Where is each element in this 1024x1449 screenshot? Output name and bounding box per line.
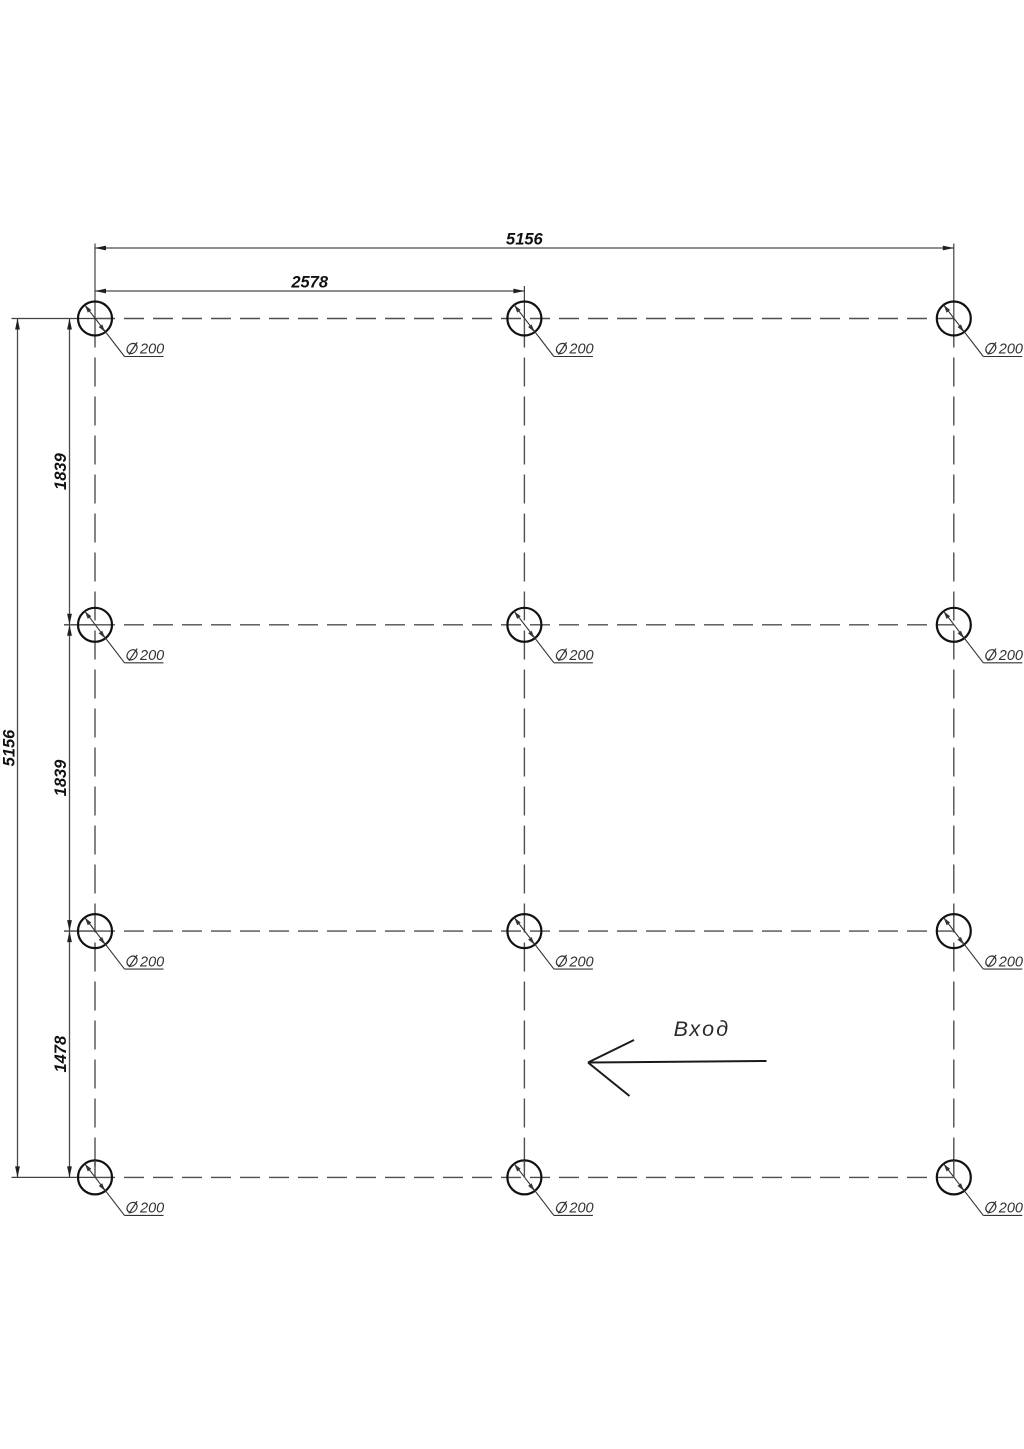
svg-text:200: 200 [139,954,164,970]
svg-text:200: 200 [139,648,164,664]
svg-text:1478: 1478 [52,1035,70,1073]
svg-text:200: 200 [139,342,164,358]
svg-text:Вход: Вход [674,1017,731,1041]
svg-text:200: 200 [568,954,593,970]
svg-text:200: 200 [139,1201,164,1217]
svg-text:200: 200 [568,1201,593,1217]
svg-text:200: 200 [998,342,1023,358]
svg-text:200: 200 [998,648,1023,664]
svg-text:200: 200 [998,1201,1023,1217]
svg-text:1839: 1839 [52,452,70,490]
svg-text:1839: 1839 [52,759,70,797]
svg-text:200: 200 [568,648,593,664]
svg-text:2578: 2578 [290,274,329,292]
svg-text:200: 200 [998,954,1023,970]
svg-text:200: 200 [568,342,593,358]
svg-text:5156: 5156 [506,231,544,249]
svg-text:5156: 5156 [1,729,19,767]
